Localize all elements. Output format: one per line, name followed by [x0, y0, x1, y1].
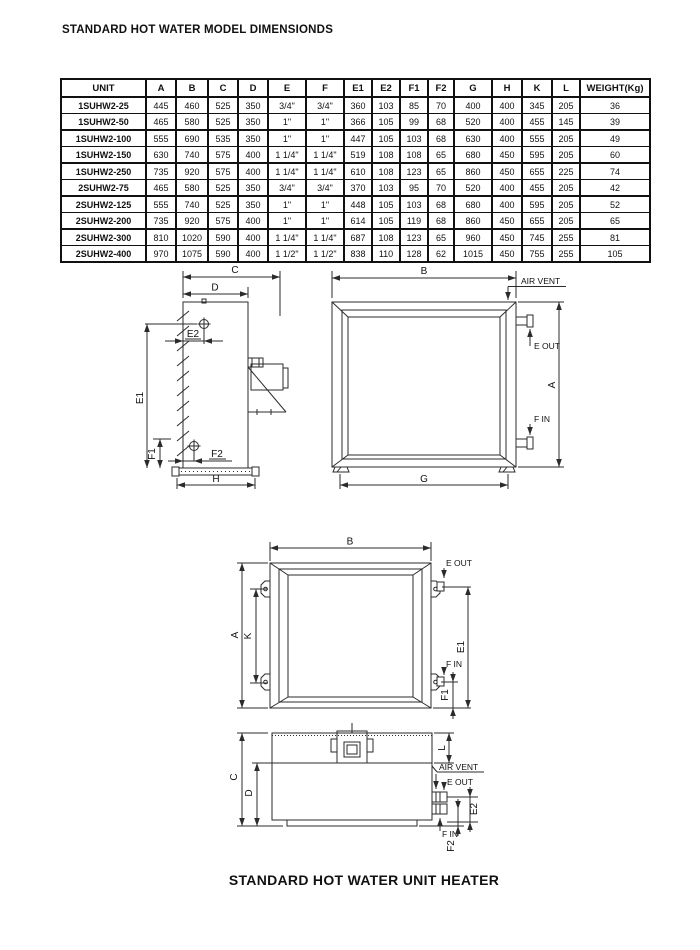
value-cell: 525 — [208, 114, 238, 131]
value-cell: 590 — [208, 229, 238, 246]
value-cell: 68 — [428, 213, 454, 230]
value-cell: 205 — [552, 147, 580, 164]
dim-label-f1: F1 — [440, 689, 451, 701]
value-cell: 575 — [208, 163, 238, 180]
dimensions-table: UNITABCDEFE1E2F1F2GHKLWEIGHT(Kg) 1SUHW2-… — [60, 78, 651, 263]
column-header: F — [306, 79, 344, 97]
value-cell: 1 1/4" — [268, 163, 306, 180]
value-cell: 655 — [522, 213, 552, 230]
value-cell: 810 — [146, 229, 176, 246]
value-cell: 360 — [344, 97, 372, 114]
value-cell: 1 1/4" — [306, 163, 344, 180]
value-cell: 1" — [268, 114, 306, 131]
value-cell: 555 — [146, 130, 176, 147]
column-header: D — [238, 79, 268, 97]
value-cell: 690 — [176, 130, 208, 147]
value-cell: 205 — [552, 196, 580, 213]
unit-cell: 1SUHW2-25 — [61, 97, 146, 114]
front-view-drawing: B AIR VENT E OUT F IN A G — [325, 258, 570, 500]
value-cell: 85 — [400, 97, 428, 114]
value-cell: 105 — [372, 114, 400, 131]
value-cell: 74 — [580, 163, 650, 180]
value-cell: 95 — [400, 180, 428, 197]
dim-label-e2: E2 — [187, 329, 200, 340]
value-cell: 42 — [580, 180, 650, 197]
value-cell: 49 — [580, 130, 650, 147]
value-cell: 350 — [238, 130, 268, 147]
value-cell: 108 — [372, 163, 400, 180]
column-header: F1 — [400, 79, 428, 97]
dim-label-e1: E1 — [135, 391, 146, 404]
table-row: 1SUHW2-1506307405754001 1/4"1 1/4"519108… — [61, 147, 650, 164]
dim-label-e2: E2 — [469, 802, 480, 815]
value-cell: 1" — [268, 196, 306, 213]
value-cell: 123 — [400, 163, 428, 180]
value-cell: 68 — [428, 130, 454, 147]
value-cell: 1 1/4" — [306, 147, 344, 164]
value-cell: 60 — [580, 147, 650, 164]
mounting-bracket — [261, 674, 270, 690]
unit-cell: 2SUHW2-125 — [61, 196, 146, 213]
unit-body — [183, 302, 248, 468]
e-out-label: E OUT — [447, 777, 473, 787]
value-cell: 455 — [522, 114, 552, 131]
value-cell: 400 — [238, 213, 268, 230]
value-cell: 1 1/4" — [306, 229, 344, 246]
value-cell: 3/4" — [306, 180, 344, 197]
value-cell: 448 — [344, 196, 372, 213]
water-inlet-pipe — [516, 439, 527, 447]
side-view-drawing: C D E2 E1 F1 — [135, 258, 325, 508]
column-header: K — [522, 79, 552, 97]
column-header: H — [492, 79, 522, 97]
value-cell: 400 — [492, 97, 522, 114]
dim-label-g: G — [420, 474, 428, 485]
dim-label-d: D — [211, 283, 218, 294]
air-vent-label: AIR VENT — [439, 762, 478, 772]
value-cell: 400 — [238, 163, 268, 180]
value-cell: 860 — [454, 213, 492, 230]
value-cell: 36 — [580, 97, 650, 114]
column-header: L — [552, 79, 580, 97]
value-cell: 400 — [454, 97, 492, 114]
value-cell: 52 — [580, 196, 650, 213]
dim-label-a: A — [230, 631, 241, 638]
value-cell: 447 — [344, 130, 372, 147]
value-cell: 400 — [492, 196, 522, 213]
page-title: STANDARD HOT WATER MODEL DIMENSIONDS — [62, 24, 333, 36]
value-cell: 65 — [580, 213, 650, 230]
value-cell: 465 — [146, 180, 176, 197]
air-vent-label: AIR VENT — [521, 276, 560, 286]
value-cell: 105 — [580, 246, 650, 263]
value-cell: 455 — [522, 180, 552, 197]
value-cell: 65 — [428, 229, 454, 246]
table-header-row: UNITABCDEFE1E2F1F2GHKLWEIGHT(Kg) — [61, 79, 650, 97]
column-header: WEIGHT(Kg) — [580, 79, 650, 97]
value-cell: 81 — [580, 229, 650, 246]
value-cell: 103 — [372, 97, 400, 114]
value-cell: 105 — [372, 196, 400, 213]
column-header: A — [146, 79, 176, 97]
value-cell: 465 — [146, 114, 176, 131]
value-cell: 450 — [492, 229, 522, 246]
value-cell: 350 — [238, 180, 268, 197]
value-cell: 68 — [428, 114, 454, 131]
heater-frame — [332, 302, 516, 467]
value-cell: 400 — [492, 114, 522, 131]
dim-label-c: C — [229, 773, 240, 780]
water-outlet-pipe — [516, 317, 527, 325]
value-cell: 70 — [428, 97, 454, 114]
column-header: C — [208, 79, 238, 97]
unit-cell: 1SUHW2-250 — [61, 163, 146, 180]
value-cell: 1" — [306, 130, 344, 147]
value-cell: 108 — [372, 229, 400, 246]
coil-section — [272, 763, 432, 820]
value-cell: 450 — [492, 163, 522, 180]
value-cell: 350 — [238, 114, 268, 131]
e-out-label: E OUT — [446, 558, 472, 568]
unit-cell: 2SUHW2-400 — [61, 246, 146, 263]
value-cell: 445 — [146, 97, 176, 114]
value-cell: 65 — [428, 147, 454, 164]
value-cell: 1 1/4" — [268, 147, 306, 164]
value-cell: 535 — [208, 130, 238, 147]
value-cell: 345 — [522, 97, 552, 114]
mounting-view-drawing: B A K E OUT E1 F IN — [228, 535, 478, 723]
dim-label-f2: F2 — [211, 449, 223, 460]
column-header: G — [454, 79, 492, 97]
value-cell: 575 — [208, 147, 238, 164]
value-cell: 205 — [552, 213, 580, 230]
dim-label-f1: F1 — [147, 448, 158, 460]
value-cell: 1" — [268, 213, 306, 230]
table-row: 2SUHW2-2007359205754001"1"61410511968860… — [61, 213, 650, 230]
value-cell: 400 — [238, 229, 268, 246]
table-row: 1SUHW2-2507359205754001 1/4"1 1/4"610108… — [61, 163, 650, 180]
value-cell: 614 — [344, 213, 372, 230]
value-cell: 103 — [372, 180, 400, 197]
value-cell: 580 — [176, 180, 208, 197]
dim-label-e1: E1 — [456, 640, 467, 653]
value-cell: 400 — [492, 130, 522, 147]
value-cell: 960 — [454, 229, 492, 246]
value-cell: 525 — [208, 97, 238, 114]
dim-label-f2: F2 — [446, 840, 457, 852]
value-cell: 1020 — [176, 229, 208, 246]
value-cell: 580 — [176, 114, 208, 131]
dim-label-h: H — [212, 474, 219, 485]
value-cell: 39 — [580, 114, 650, 131]
value-cell: 520 — [454, 114, 492, 131]
f-in-label: F IN — [534, 414, 550, 424]
unit-cell: 2SUHW2-75 — [61, 180, 146, 197]
value-cell: 595 — [522, 196, 552, 213]
value-cell: 450 — [492, 213, 522, 230]
base-strip — [287, 820, 417, 826]
value-cell: 105 — [372, 130, 400, 147]
e-out-label: E OUT — [534, 341, 560, 351]
value-cell: 370 — [344, 180, 372, 197]
value-cell: 740 — [176, 196, 208, 213]
value-cell: 655 — [522, 163, 552, 180]
document-caption: STANDARD HOT WATER UNIT HEATER — [0, 872, 700, 888]
value-cell: 680 — [454, 196, 492, 213]
value-cell: 1" — [306, 114, 344, 131]
value-cell: 205 — [552, 180, 580, 197]
value-cell: 3/4" — [306, 97, 344, 114]
value-cell: 525 — [208, 196, 238, 213]
value-cell: 205 — [552, 130, 580, 147]
unit-cell: 2SUHW2-200 — [61, 213, 146, 230]
value-cell: 525 — [208, 180, 238, 197]
value-cell: 555 — [146, 196, 176, 213]
value-cell: 450 — [492, 147, 522, 164]
value-cell: 105 — [372, 213, 400, 230]
heater-frame — [270, 563, 431, 708]
unit-cell: 1SUHW2-150 — [61, 147, 146, 164]
value-cell: 400 — [492, 180, 522, 197]
value-cell: 108 — [372, 147, 400, 164]
table-row: 2SUHW2-754655805253503/4"3/4"37010395705… — [61, 180, 650, 197]
value-cell: 520 — [454, 180, 492, 197]
value-cell: 99 — [400, 114, 428, 131]
value-cell: 630 — [454, 130, 492, 147]
value-cell: 350 — [238, 196, 268, 213]
value-cell: 68 — [428, 196, 454, 213]
value-cell: 735 — [146, 213, 176, 230]
value-cell: 119 — [400, 213, 428, 230]
value-cell: 920 — [176, 213, 208, 230]
f-in-label: F IN — [446, 659, 462, 669]
value-cell: 366 — [344, 114, 372, 131]
value-cell: 70 — [428, 180, 454, 197]
value-cell: 205 — [552, 97, 580, 114]
value-cell: 519 — [344, 147, 372, 164]
value-cell: 630 — [146, 147, 176, 164]
unit-cell: 1SUHW2-50 — [61, 114, 146, 131]
dim-label-k: K — [243, 632, 254, 639]
value-cell: 225 — [552, 163, 580, 180]
dim-label-l: L — [437, 745, 448, 751]
value-cell: 145 — [552, 114, 580, 131]
value-cell: 103 — [400, 196, 428, 213]
value-cell: 3/4" — [268, 97, 306, 114]
value-cell: 745 — [522, 229, 552, 246]
value-cell: 740 — [176, 147, 208, 164]
column-header: UNIT — [61, 79, 146, 97]
dim-label-b: B — [347, 537, 354, 548]
column-header: B — [176, 79, 208, 97]
value-cell: 595 — [522, 147, 552, 164]
column-header: E1 — [344, 79, 372, 97]
dim-label-d: D — [244, 789, 255, 796]
value-cell: 400 — [238, 147, 268, 164]
value-cell: 680 — [454, 147, 492, 164]
table-body: 1SUHW2-254454605253503/4"3/4"36010385704… — [61, 97, 650, 262]
value-cell: 1 1/4" — [268, 229, 306, 246]
document-page: STANDARD HOT WATER MODEL DIMENSIONDS UNI… — [0, 0, 700, 950]
value-cell: 255 — [552, 229, 580, 246]
value-cell: 735 — [146, 163, 176, 180]
value-cell: 920 — [176, 163, 208, 180]
column-header: F2 — [428, 79, 454, 97]
top-view-drawing: C D L AIR VENT E OUT F IN E2 — [208, 713, 493, 863]
value-cell: 687 — [344, 229, 372, 246]
value-cell: 3/4" — [268, 180, 306, 197]
table-row: 2SUHW2-1255557405253501"1"44810510368680… — [61, 196, 650, 213]
table-row: 1SUHW2-504655805253501"1"366105996852040… — [61, 114, 650, 131]
unit-cell: 1SUHW2-100 — [61, 130, 146, 147]
dim-label-a: A — [547, 381, 558, 388]
value-cell: 610 — [344, 163, 372, 180]
value-cell: 1" — [306, 213, 344, 230]
value-cell: 1" — [306, 196, 344, 213]
column-header: E2 — [372, 79, 400, 97]
dim-label-b: B — [421, 266, 428, 277]
unit-cell: 2SUHW2-300 — [61, 229, 146, 246]
value-cell: 1" — [268, 130, 306, 147]
value-cell: 65 — [428, 163, 454, 180]
value-cell: 460 — [176, 97, 208, 114]
f-in-label: F IN — [442, 829, 458, 839]
value-cell: 575 — [208, 213, 238, 230]
dim-label-c: C — [231, 265, 238, 276]
table-row: 1SUHW2-1005556905353501"1"44710510368630… — [61, 130, 650, 147]
value-cell: 555 — [522, 130, 552, 147]
table-row: 1SUHW2-254454605253503/4"3/4"36010385704… — [61, 97, 650, 114]
value-cell: 860 — [454, 163, 492, 180]
value-cell: 108 — [400, 147, 428, 164]
column-header: E — [268, 79, 306, 97]
value-cell: 123 — [400, 229, 428, 246]
value-cell: 350 — [238, 97, 268, 114]
value-cell: 103 — [400, 130, 428, 147]
table-row: 2SUHW2-30081010205904001 1/4"1 1/4"68710… — [61, 229, 650, 246]
